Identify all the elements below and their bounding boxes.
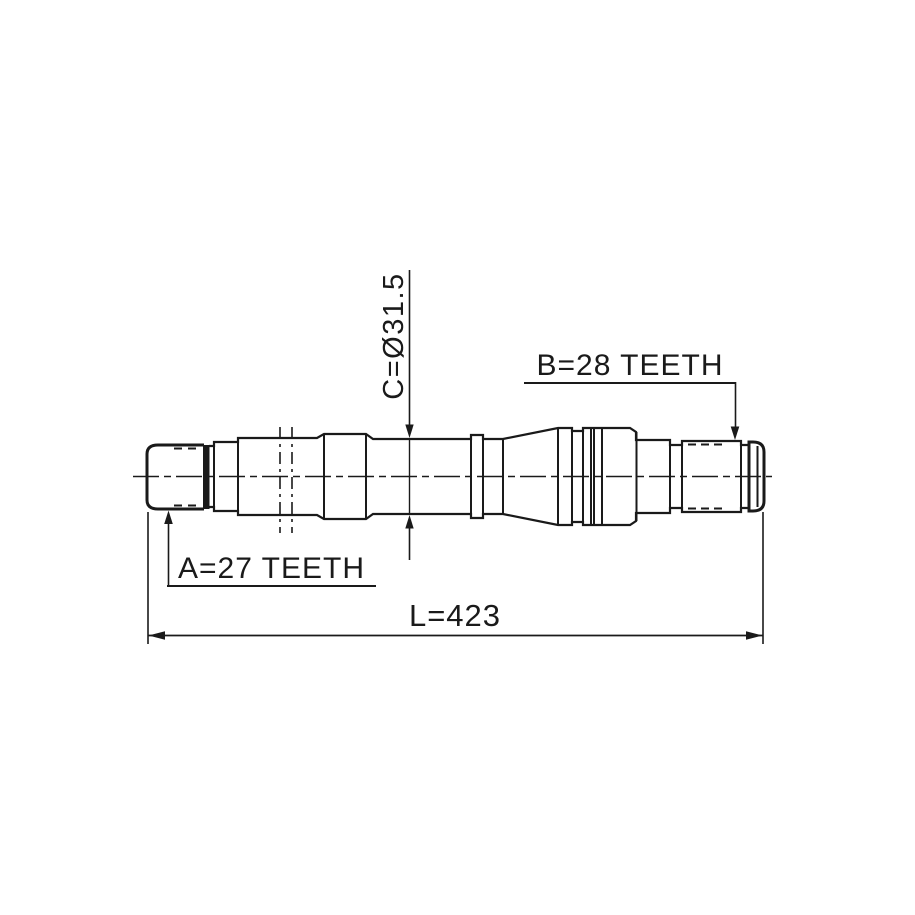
break-lines — [280, 427, 292, 533]
dimension-c-arrow-down — [405, 425, 413, 439]
leader-b — [731, 382, 740, 440]
spline-a-end-bar — [203, 445, 210, 509]
shaft-top-profile — [209, 428, 749, 446]
leader-a-arrow — [164, 511, 173, 525]
drawing-canvas: A=27 TEETH B=28 TEETH C=Ø31.5 L=423 — [0, 0, 915, 915]
shaft-bottom-profile — [209, 507, 749, 525]
leader-b-arrow — [731, 427, 740, 441]
dimension-l-arrow-right — [746, 631, 763, 640]
label-b-teeth: B=28 TEETH — [524, 348, 736, 384]
label-a-teeth: A=27 TEETH — [167, 551, 376, 587]
label-l-length: L=423 — [375, 600, 535, 632]
dimension-c-arrow-up — [405, 515, 413, 529]
dimension-l-arrow-left — [149, 631, 166, 640]
shaft-drawing — [0, 0, 915, 915]
label-c-diameter: C=Ø31.5 — [379, 266, 409, 406]
